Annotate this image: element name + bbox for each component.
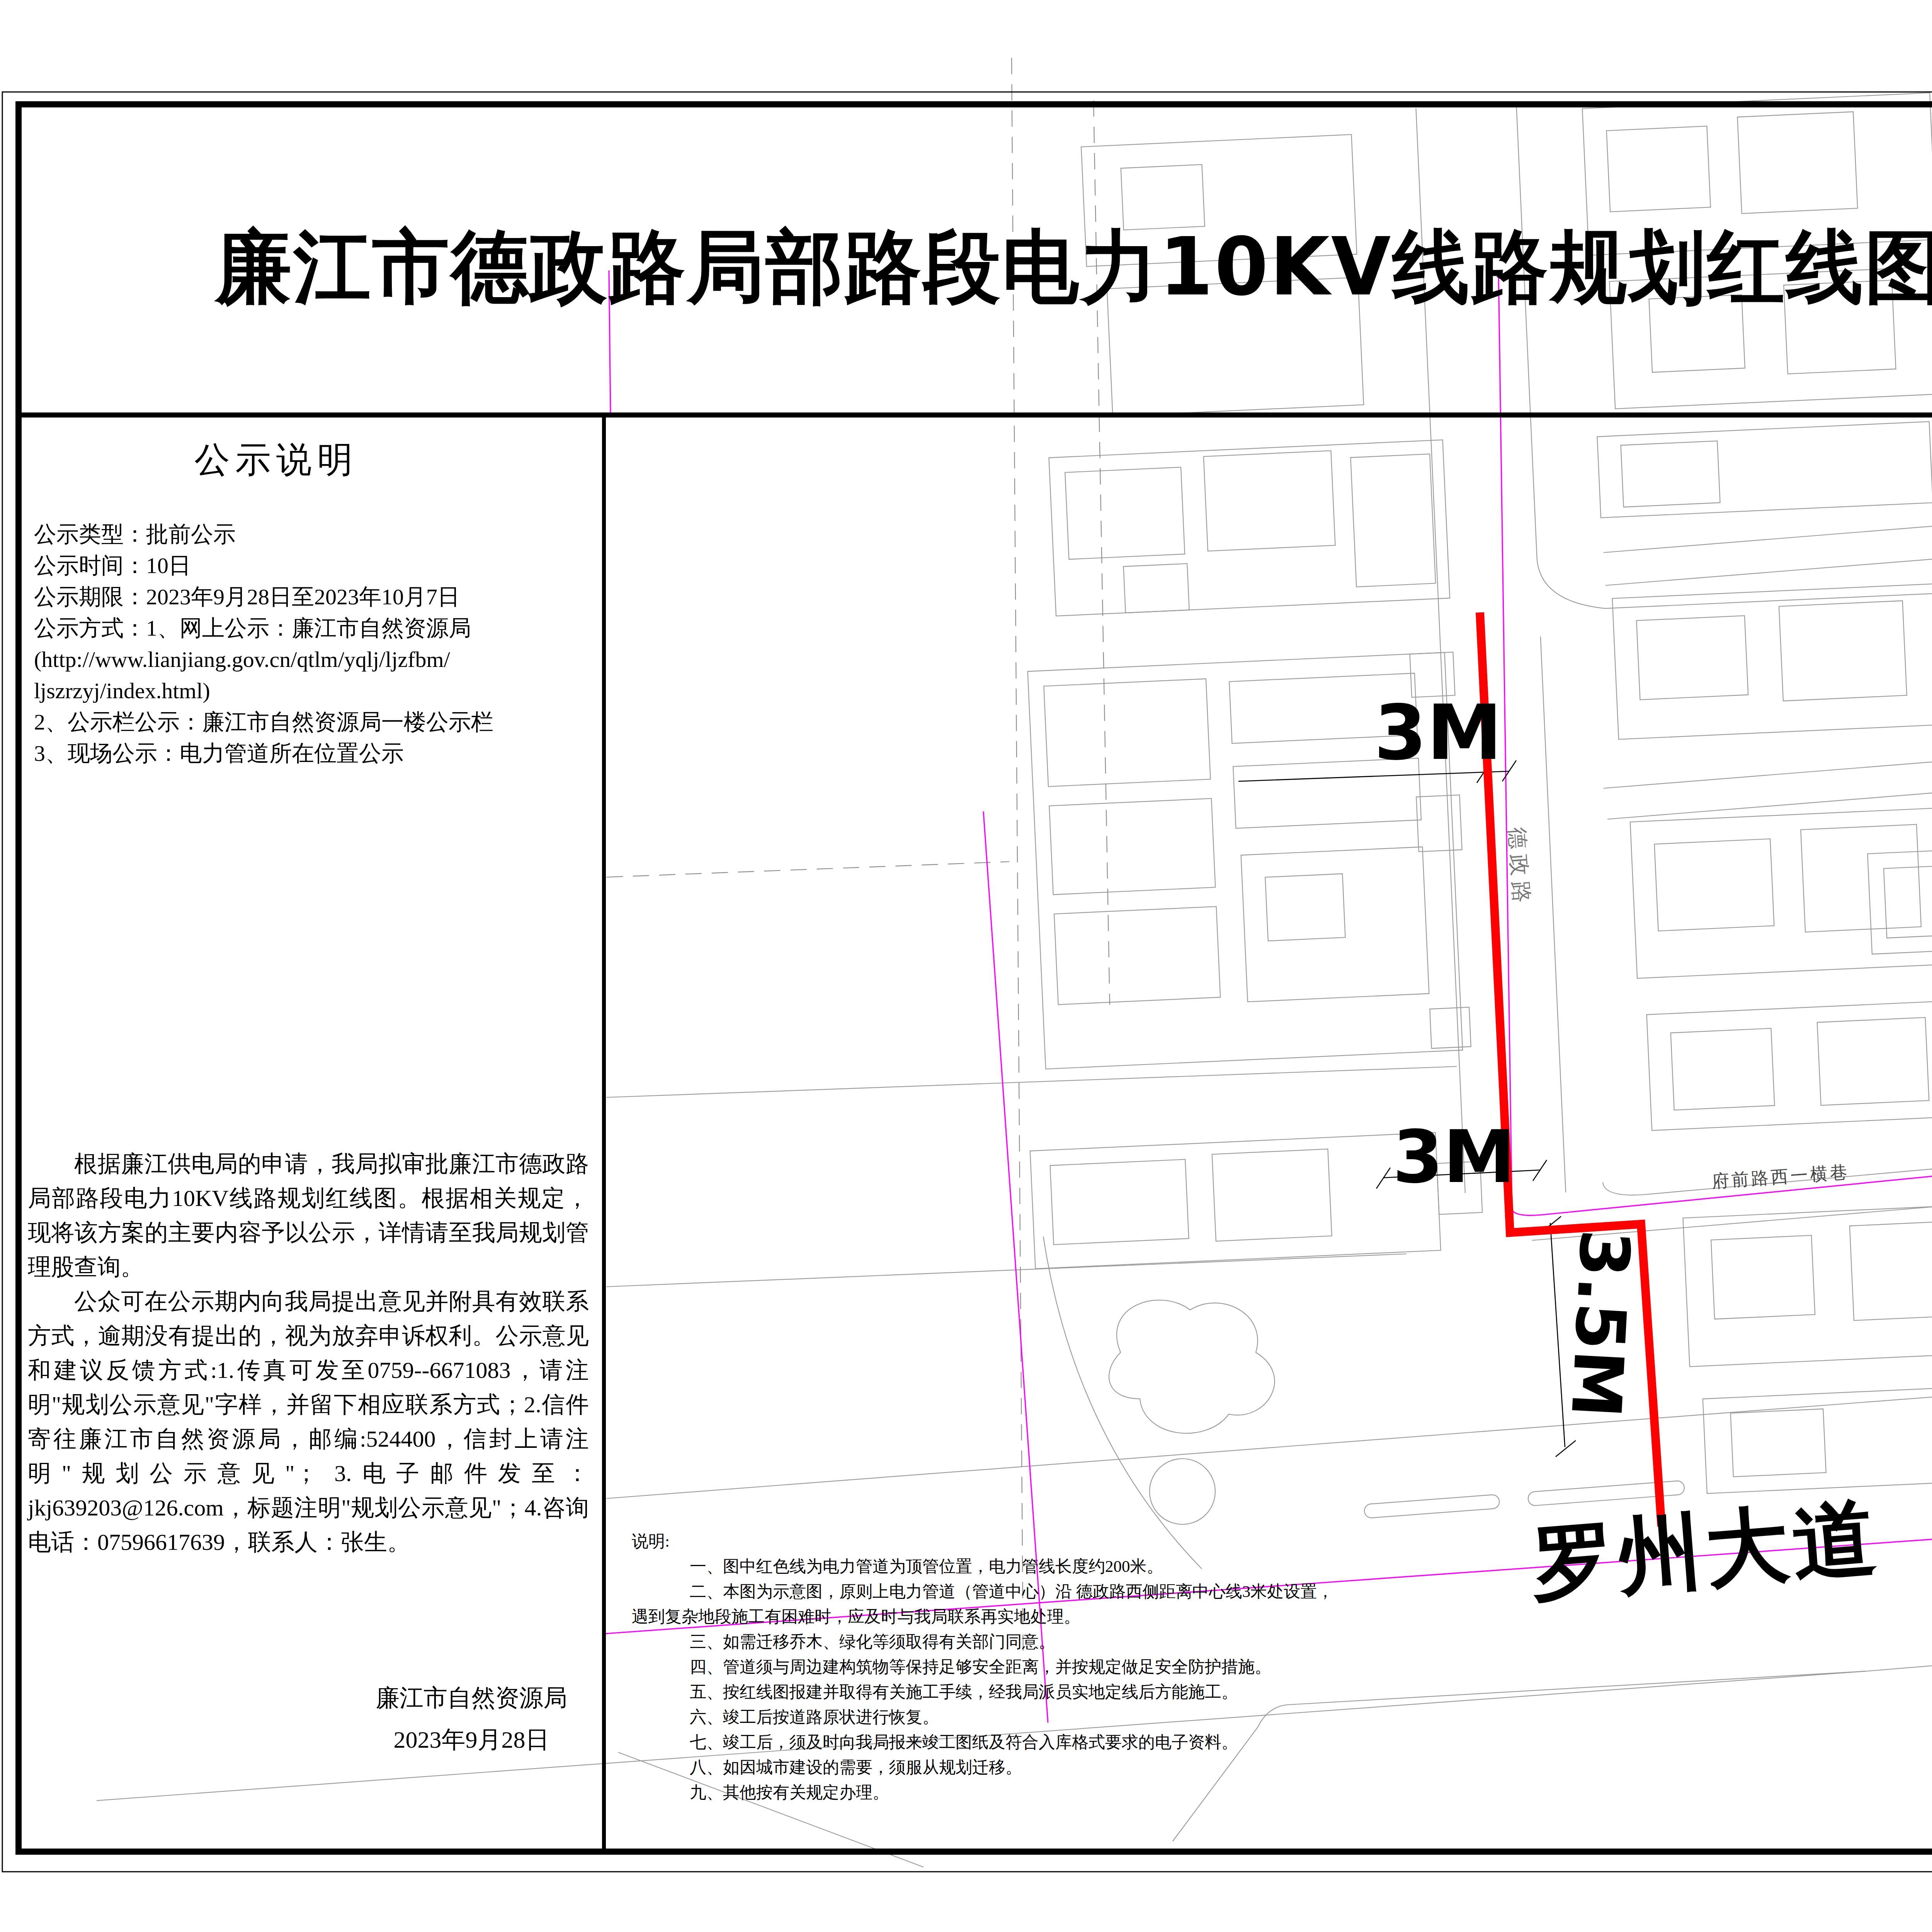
note-line: 遇到复杂地段施工有困难时，应及时与我局联系再实地处理。 <box>632 1604 1907 1629</box>
notice-panel-heading: 公示说明 <box>35 436 518 484</box>
notice-paragraph-2: 公众可在公示期内向我局提出意见并附具有效联系方式，逾期没有提出的，视为放弃申诉权… <box>28 1284 589 1560</box>
note-line: 四、管道须与周边建构筑物等保持足够安全距离，并按规定做足安全防护措施。 <box>632 1654 1907 1679</box>
note-line: 三、如需迁移乔木、绿化等须取得有关部门同意。 <box>632 1629 1907 1654</box>
notice-method-online: 公示方式：1、网上公示：廉江市自然资源局 <box>34 612 594 644</box>
notice-paragraph-1: 根据廉江供电局的申请，我局拟审批廉江市德政路局部路段电力10KV线路规划红线图。… <box>28 1147 589 1284</box>
notice-period: 公示期限：2023年9月28日至2023年10月7日 <box>34 581 594 612</box>
notice-method-board: 2、公示栏公示：廉江市自然资源局一楼公示栏 <box>34 706 594 738</box>
offset-dim-label-upper: 3M <box>1374 689 1502 777</box>
notice-info-list: 公示类型：批前公示 公示时间：10日 公示期限：2023年9月28日至2023年… <box>34 519 594 769</box>
notice-url-line1: (http://www.lianjiang.gov.cn/qtlm/yqlj/l… <box>34 644 594 675</box>
signature-block: 廉江市自然资源局 2023年9月28日 <box>359 1677 583 1760</box>
note-line: 七、竣工后，须及时向我局报来竣工图纸及符合入库格式要求的电子资料。 <box>632 1730 1907 1755</box>
note-line: 八、如因城市建设的需要，须服从规划迁移。 <box>632 1755 1907 1780</box>
page-title: 廉江市德政路局部路段电力10KV线路规划红线图批前公示 <box>150 214 1932 322</box>
note-line: 九、其他按有关规定办理。 <box>632 1780 1907 1805</box>
signature-date: 2023年9月28日 <box>359 1719 583 1760</box>
notice-body: 根据廉江供电局的申请，我局拟审批廉江市德政路局部路段电力10KV线路规划红线图。… <box>28 1147 589 1560</box>
note-line: 六、竣工后按道路原状进行恢复。 <box>632 1704 1907 1730</box>
note-line: 五、按红线图报建并取得有关施工手续，经我局派员实地定线后方能施工。 <box>632 1679 1907 1704</box>
notice-duration: 公示时间：10日 <box>34 550 594 581</box>
offset-dim-label-lower: 3M <box>1393 1114 1515 1199</box>
notice-url-line2: ljszrzyj/index.html) <box>34 675 594 706</box>
notice-method-site: 3、现场公示：电力管道所在位置公示 <box>34 738 594 769</box>
road-label-dezheng: 德政路 <box>1502 826 1536 909</box>
notice-type: 公示类型：批前公示 <box>34 519 594 550</box>
signature-agency: 廉江市自然资源局 <box>359 1677 583 1719</box>
offset-dim-label-vertical: 3.5M <box>1556 1228 1645 1420</box>
